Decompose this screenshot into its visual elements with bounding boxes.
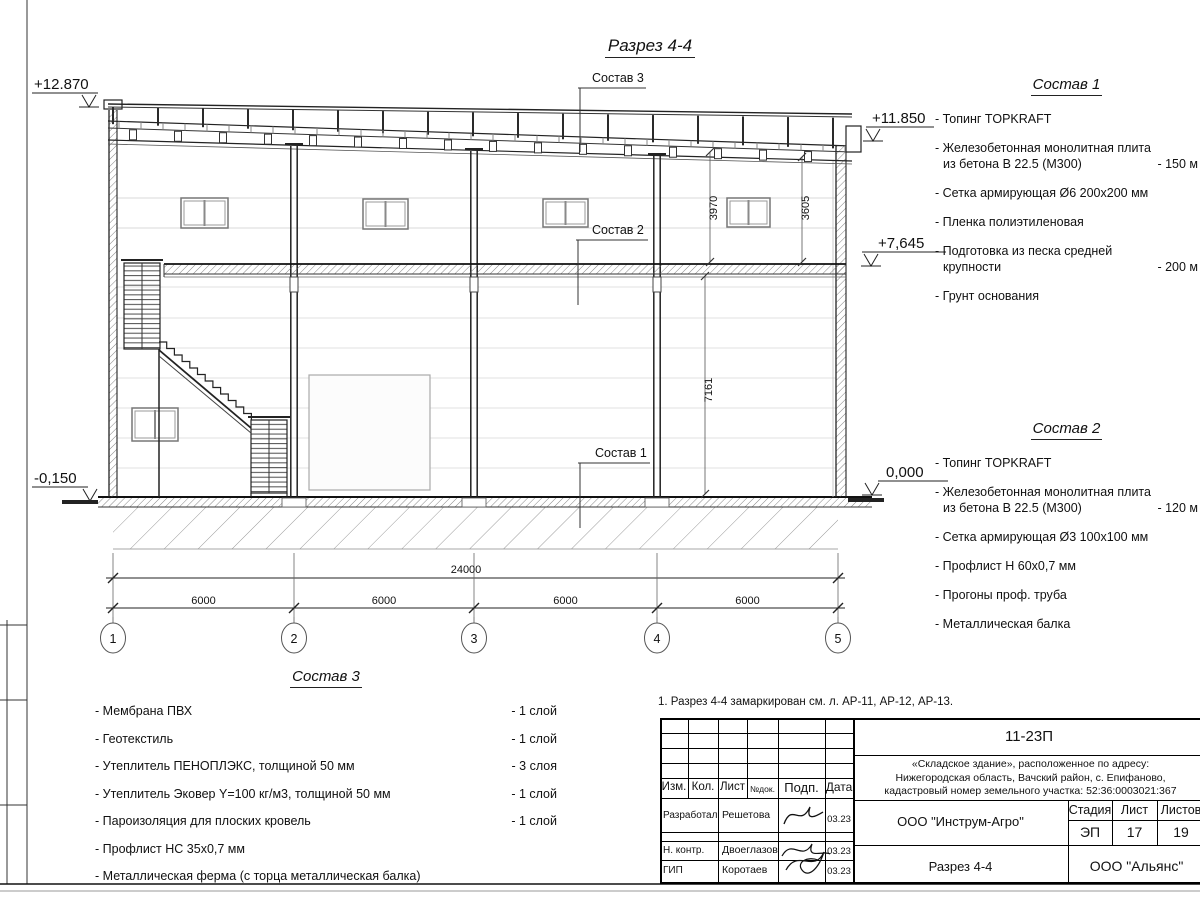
col-header-izm: Изм. bbox=[660, 781, 688, 793]
column-base bbox=[282, 498, 306, 507]
row-role: Н. контр. bbox=[663, 845, 718, 856]
purlin bbox=[355, 137, 362, 147]
sheet-title: Разрез 4-4 bbox=[853, 859, 1068, 874]
item-quantity: - 1 слой bbox=[505, 703, 557, 719]
composition-list-1: Состав 1 - Топинг TOPKRAFT - Железобетон… bbox=[935, 76, 1198, 317]
contractor: ООО "Альянс" bbox=[1068, 858, 1200, 874]
list-item: - Металлическая балка bbox=[935, 616, 1198, 632]
list-item: - Сетка армирующая Ø6 200х200 мм bbox=[935, 185, 1198, 201]
roof-fascia bbox=[846, 126, 861, 152]
axis-number: 2 bbox=[291, 632, 298, 646]
beam-stub bbox=[290, 277, 298, 292]
dim-height-7161: 7161 bbox=[703, 378, 715, 402]
gate-opening bbox=[309, 375, 430, 490]
beam-stub bbox=[653, 277, 661, 292]
sheet-label: Лист bbox=[1112, 803, 1157, 817]
dim-bay: 6000 bbox=[191, 595, 215, 607]
design-org: ООО "Инструм-Агро" bbox=[853, 814, 1068, 829]
item-text: - Пленка полиэтиленовая bbox=[935, 214, 1084, 230]
elevation-zero: 0,000 bbox=[886, 464, 924, 481]
project-description: «Складское здание», расположенное по адр… bbox=[856, 758, 1200, 799]
purlin bbox=[535, 143, 542, 153]
item-text: - Топинг TOPKRAFT bbox=[935, 111, 1051, 127]
list-item: - Подготовка из песка средней крупности … bbox=[935, 243, 1198, 275]
elevation-mezzanine: +7,645 bbox=[878, 235, 924, 252]
item-text: - Металлическая ферма (с торца металличе… bbox=[95, 868, 421, 884]
item-text: - Мембрана ПВХ bbox=[95, 703, 192, 719]
dim-bay: 6000 bbox=[553, 595, 577, 607]
list-item: - Грунт основания bbox=[935, 288, 1198, 304]
purlin bbox=[625, 146, 632, 156]
item-text: - Железобетонная монолитная плита bbox=[935, 484, 1151, 500]
dimension-lines bbox=[106, 578, 845, 608]
item-text: - Сетка армирующая Ø6 200х200 мм bbox=[935, 185, 1148, 201]
elevation-parapet-left: +12.870 bbox=[34, 76, 89, 93]
purlin bbox=[715, 149, 722, 159]
beam-stub bbox=[470, 277, 478, 292]
purlin bbox=[400, 139, 407, 149]
item-quantity: - 1 слой bbox=[505, 731, 557, 747]
axis-number: 4 bbox=[654, 632, 661, 646]
purlin bbox=[310, 136, 317, 146]
item-text: - Профлист НС 35х0,7 мм bbox=[95, 841, 245, 857]
col-header-list: Лист bbox=[718, 781, 747, 793]
title-block: Изм. Кол. Лист №док. Подп. Дата Разработ… bbox=[660, 718, 1200, 884]
item-text: - Утеплитель ПЕНОПЛЭКС, толщиной 50 мм bbox=[95, 758, 355, 774]
item-quantity: - 1 слой bbox=[505, 786, 557, 802]
purlin bbox=[580, 144, 587, 154]
signatures bbox=[778, 798, 853, 884]
dim-total: 24000 bbox=[451, 564, 482, 576]
row-role: ГИП bbox=[663, 865, 718, 876]
beam-stubs bbox=[290, 277, 661, 292]
column-base bbox=[645, 498, 669, 507]
list-item: - Утеплитель ПЕНОПЛЭКС, толщиной 50 мм -… bbox=[95, 758, 557, 774]
list-item: - Мембрана ПВХ - 1 слой bbox=[95, 703, 557, 719]
list-item: - Топинг TOPKRAFT bbox=[935, 111, 1198, 127]
item-text: - Геотекстиль bbox=[95, 731, 173, 747]
row-name: Двоеглазов bbox=[722, 844, 780, 856]
item-text-line2: из бетона В 22.5 (М300) bbox=[935, 156, 1151, 172]
list-item: - Прогоны проф. труба bbox=[935, 587, 1198, 603]
right-apron bbox=[848, 498, 884, 502]
item-text: - Сетка армирующая Ø3 100х100 мм bbox=[935, 529, 1148, 545]
col-header-kol: Кол. bbox=[688, 781, 718, 793]
dim-bay: 6000 bbox=[372, 595, 396, 607]
sheet-note: 1. Разрез 4-4 замаркирован см. л. АР-11,… bbox=[658, 696, 953, 708]
purlin bbox=[220, 133, 227, 143]
purlin bbox=[445, 140, 452, 150]
purlin bbox=[175, 131, 182, 141]
dim-height-3605: 3605 bbox=[800, 196, 812, 220]
list-item: - Сетка армирующая Ø3 100х100 мм bbox=[935, 529, 1198, 545]
walls-and-roof bbox=[104, 100, 861, 497]
window bbox=[363, 199, 408, 229]
purlin bbox=[760, 150, 767, 160]
sheet-value: 17 bbox=[1112, 824, 1157, 840]
item-quantity: - 1 слой bbox=[505, 813, 557, 829]
composition-list-3: Состав 3 - Мембрана ПВХ - 1 слой - Геоте… bbox=[95, 668, 557, 896]
axis-number: 1 bbox=[110, 632, 117, 646]
composition-list-2: Состав 2 - Топинг TOPKRAFT - Железобетон… bbox=[935, 420, 1198, 645]
window bbox=[543, 199, 588, 227]
list-item: - Топинг TOPKRAFT bbox=[935, 455, 1198, 471]
mezzanine-slab bbox=[164, 264, 846, 277]
item-text-line2: из бетона В 22.5 (М300) bbox=[935, 500, 1151, 516]
row-role: Разработал bbox=[663, 810, 718, 821]
signature-icon bbox=[782, 844, 830, 873]
item-text: - Пароизоляция для плоских кровель bbox=[95, 813, 311, 829]
list-item: - Пленка полиэтиленовая bbox=[935, 214, 1198, 230]
list-item: - Профлист НС 35х0,7 мм bbox=[95, 841, 557, 857]
composition-3-title: Состав 3 bbox=[95, 668, 557, 685]
row-name: Коротаев bbox=[722, 864, 780, 876]
list-item: - Металлическая ферма (с торца металличе… bbox=[95, 868, 557, 884]
window bbox=[181, 198, 228, 228]
axis-number: 3 bbox=[471, 632, 478, 646]
composition-2-items: - Топинг TOPKRAFT - Железобетонная монол… bbox=[935, 455, 1198, 632]
drawing-title: Разрез 4-4 bbox=[585, 36, 715, 56]
col-header-data: Дата bbox=[825, 780, 853, 794]
composition-1-items: - Топинг TOPKRAFT - Железобетонная монол… bbox=[935, 111, 1198, 304]
item-quantity: - 3 слоя bbox=[506, 758, 557, 774]
purlin bbox=[490, 141, 497, 151]
item-text: - Грунт основания bbox=[935, 288, 1039, 304]
col-header-ndoc: №док. bbox=[747, 784, 778, 794]
column-base bbox=[462, 498, 486, 507]
document-code: 11-23П bbox=[853, 728, 1200, 745]
windows bbox=[132, 198, 770, 441]
elevation-roof-right: +11.850 bbox=[872, 110, 926, 127]
drawing-sheet: 123456000600060006000 +12.870 +11.850 +7… bbox=[0, 0, 1200, 900]
item-text: - Подготовка из песка средней bbox=[935, 243, 1112, 259]
purlin bbox=[130, 130, 137, 140]
item-quantity: - 150 м bbox=[1151, 156, 1198, 172]
composition-3-items: - Мембрана ПВХ - 1 слой - Геотекстиль - … bbox=[95, 703, 557, 884]
left-apron bbox=[62, 500, 98, 504]
item-text: - Металлическая балка bbox=[935, 616, 1070, 632]
elevation-apron-left: -0,150 bbox=[34, 470, 77, 487]
col-header-podp: Подп. bbox=[778, 780, 825, 795]
item-text: - Железобетонная монолитная плита bbox=[935, 140, 1151, 156]
sheets-value: 19 bbox=[1157, 824, 1200, 840]
list-item: - Железобетонная монолитная плита из бет… bbox=[935, 484, 1198, 516]
item-quantity: - 120 м bbox=[1151, 500, 1198, 516]
composition-1-title: Состав 1 bbox=[935, 76, 1198, 93]
list-item: - Железобетонная монолитная плита из бет… bbox=[935, 140, 1198, 172]
signature-icon bbox=[784, 807, 823, 824]
axis-number: 5 bbox=[835, 632, 842, 646]
item-text: - Утеплитель Эковер Y=100 кг/м3, толщино… bbox=[95, 786, 391, 802]
window bbox=[132, 408, 178, 441]
item-text-line2: крупности bbox=[935, 259, 1112, 275]
item-quantity: - 200 м bbox=[1151, 259, 1198, 275]
dim-height-3970: 3970 bbox=[708, 196, 720, 220]
soil-hatch bbox=[113, 507, 838, 549]
item-text: - Прогоны проф. труба bbox=[935, 587, 1067, 603]
row-name: Решетова bbox=[722, 809, 778, 821]
item-text: - Топинг TOPKRAFT bbox=[935, 455, 1051, 471]
item-text: - Профлист Н 60х0,7 мм bbox=[935, 558, 1076, 574]
dim-bay: 6000 bbox=[735, 595, 759, 607]
purlin bbox=[670, 147, 677, 157]
list-item: - Геотекстиль - 1 слой bbox=[95, 731, 557, 747]
callout-sostav-2: Состав 2 bbox=[592, 223, 644, 237]
list-item: - Утеплитель Эковер Y=100 кг/м3, толщино… bbox=[95, 786, 557, 802]
callout-sostav-3: Состав 3 bbox=[592, 71, 644, 85]
stage-label: Стадия bbox=[1068, 803, 1112, 817]
list-item: - Профлист Н 60х0,7 мм bbox=[935, 558, 1198, 574]
sheets-label: Листов bbox=[1157, 803, 1200, 817]
callout-sostav-1: Состав 1 bbox=[595, 446, 647, 460]
stage-value: ЭП bbox=[1068, 824, 1112, 840]
window bbox=[727, 198, 770, 227]
list-item: - Пароизоляция для плоских кровель - 1 с… bbox=[95, 813, 557, 829]
composition-2-title: Состав 2 bbox=[935, 420, 1198, 437]
purlin bbox=[265, 134, 272, 144]
